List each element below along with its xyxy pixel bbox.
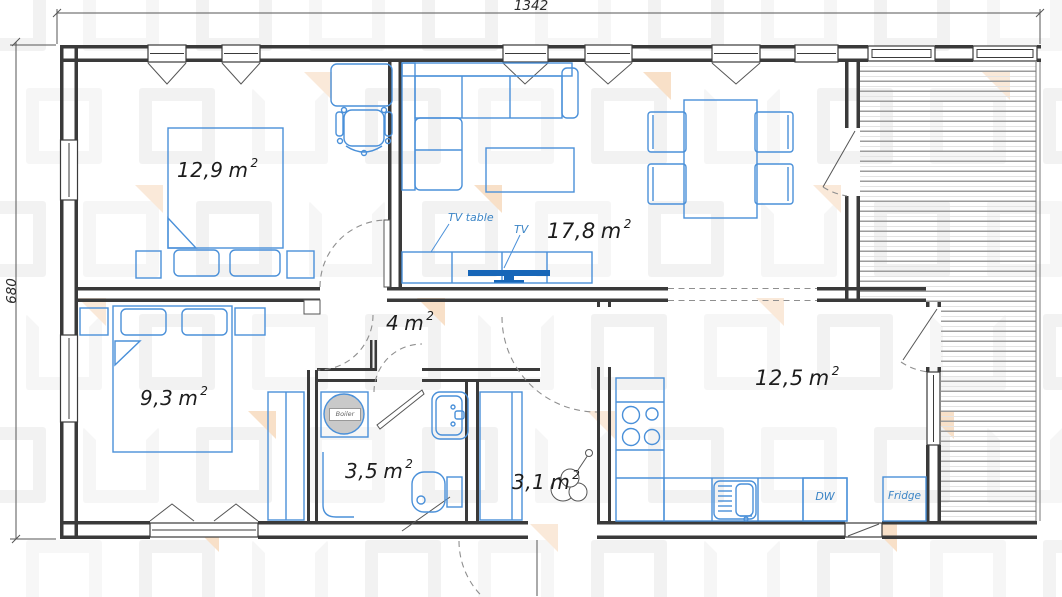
door-leaf-bathroom	[377, 390, 424, 429]
kitchen-sink	[714, 481, 756, 521]
bed-bedroom-2	[80, 306, 265, 452]
floor-plan-page: 1342 680 12,9m2 17,8m2 4m2 9,3m2 3,5m2 3…	[0, 0, 1062, 597]
door-leaf-dining-terrace	[823, 131, 855, 187]
bathroom-sink	[432, 392, 468, 439]
exterior-walls	[60, 45, 1041, 539]
dishwasher	[803, 478, 847, 521]
stove-burner	[623, 429, 640, 446]
bed-bedroom-1	[136, 128, 314, 278]
stove-burner	[645, 430, 660, 445]
wardrobe-bedroom-2	[268, 392, 304, 520]
stove-burner	[623, 407, 640, 424]
floor-plan-linework	[0, 0, 1062, 597]
dining-table-and-chairs	[648, 100, 793, 218]
desk-and-chair	[331, 64, 392, 156]
kitchen-counter	[616, 378, 847, 521]
wardrobe-entry	[480, 392, 522, 520]
door-leaf-kitchen-terrace	[903, 309, 937, 360]
sofa	[402, 63, 578, 190]
door-leaf-bedroom-1	[384, 220, 390, 287]
tv	[468, 270, 550, 276]
fridge	[883, 477, 926, 521]
shower-corner	[323, 452, 354, 517]
coffee-table	[486, 148, 574, 192]
doors	[318, 131, 937, 597]
plant	[551, 450, 593, 502]
tv-table-and-tv	[402, 224, 592, 283]
stove-burner	[646, 408, 658, 420]
boiler-unit	[321, 392, 368, 437]
windows	[61, 45, 1038, 537]
